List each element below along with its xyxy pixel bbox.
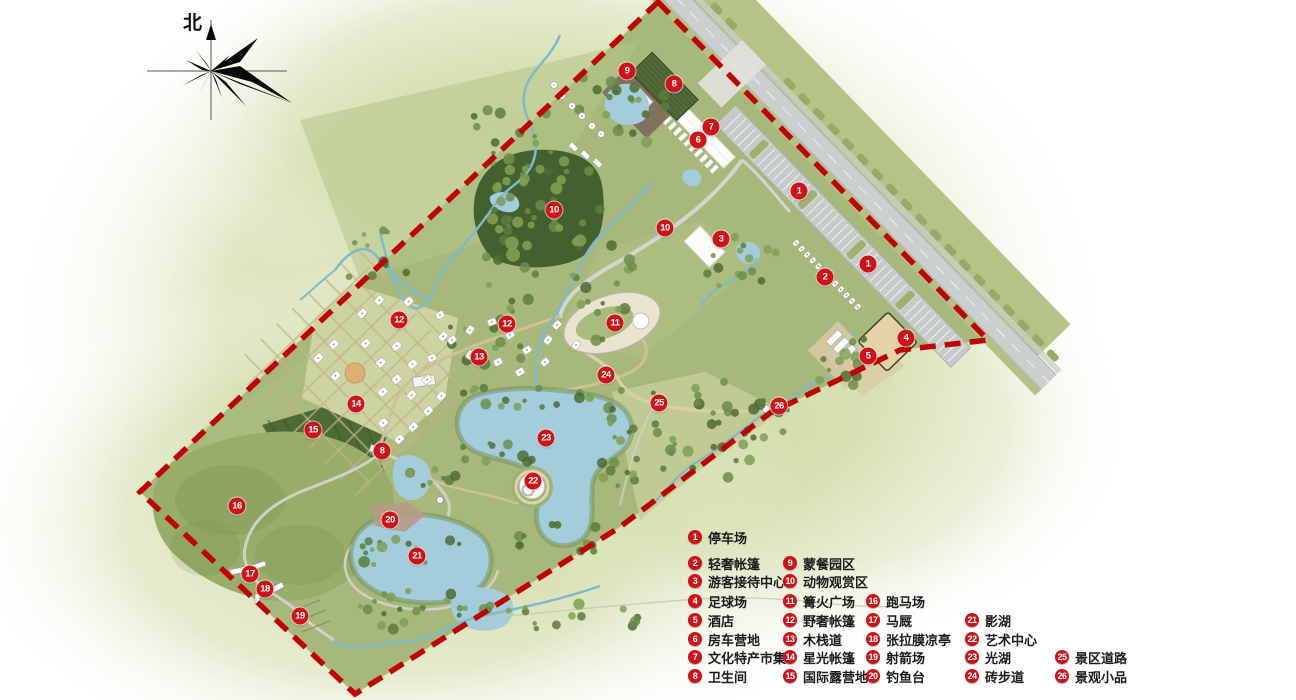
legend-item-7: 7文化特产市集 (688, 649, 786, 665)
map-overlay: 北 11234567889101011121213141516171819202… (0, 0, 1296, 700)
legend-item-26: 26景观小品 (1055, 668, 1127, 684)
legend-item-12: 12野奢帐篷 (783, 612, 855, 628)
legend-number-badge: 2 (688, 556, 702, 570)
north-label: 北 (183, 8, 202, 35)
map-marker-14: 14 (348, 396, 365, 413)
legend-item-6: 6房车营地 (688, 631, 760, 647)
legend-number-badge: 21 (965, 613, 979, 627)
map-marker-3: 3 (713, 231, 730, 248)
legend-item-19: 19射箭场 (866, 649, 925, 665)
legend-number-badge: 13 (783, 632, 797, 646)
legend-label: 砖步道 (985, 667, 1024, 686)
legend-label: 钓鱼台 (886, 667, 925, 686)
legend-label: 野奢帐篷 (803, 611, 855, 630)
legend-item-4: 4足球场 (688, 593, 747, 609)
legend-item-10: 10动物观赏区 (783, 573, 868, 589)
map-marker-9: 9 (619, 63, 636, 80)
legend-item-16: 16跑马场 (866, 593, 925, 609)
legend-item-3: 3游客接待中心 (688, 573, 786, 589)
legend-item-9: 9蒙餐园区 (783, 555, 855, 571)
legend-item-18: 18张拉膜凉亭 (866, 631, 951, 647)
legend-number-badge: 22 (965, 632, 979, 646)
map-marker-4: 4 (898, 330, 915, 347)
legend-item-24: 24砖步道 (965, 668, 1024, 684)
legend-number-badge: 12 (783, 613, 797, 627)
map-marker-15: 15 (305, 422, 322, 439)
legend-label: 文化特产市集 (708, 648, 786, 667)
legend-item-11: 11篝火广场 (783, 593, 855, 609)
legend-number-badge: 23 (965, 650, 979, 664)
legend-label: 影湖 (985, 611, 1011, 630)
map-marker-22: 22 (525, 473, 542, 490)
legend-number-badge: 11 (783, 594, 797, 608)
map-marker-7: 7 (703, 119, 720, 136)
map-marker-1: 1 (791, 183, 808, 200)
legend-number-badge: 4 (688, 594, 702, 608)
map-marker-12: 12 (391, 312, 408, 329)
legend-number-badge: 14 (783, 650, 797, 664)
map-marker-18: 18 (257, 581, 274, 598)
legend-number-badge: 19 (866, 650, 880, 664)
legend-item-14: 14星光帐篷 (783, 649, 855, 665)
legend-item-15: 15国际露营地 (783, 668, 868, 684)
map-marker-2: 2 (817, 269, 834, 286)
legend-item-23: 23光湖 (965, 649, 1011, 665)
map-marker-17: 17 (242, 566, 259, 583)
legend-label: 蒙餐园区 (803, 554, 855, 573)
legend-item-20: 20钓鱼台 (866, 668, 925, 684)
legend-number-badge: 10 (783, 574, 797, 588)
legend-label: 停车场 (708, 528, 747, 547)
map-marker-1: 1 (860, 256, 877, 273)
legend-label: 跑马场 (886, 592, 925, 611)
legend-label: 马厩 (886, 611, 912, 630)
legend-number-badge: 15 (783, 669, 797, 683)
legend-item-22: 22艺术中心 (965, 631, 1037, 647)
legend-item-5: 5酒店 (688, 612, 734, 628)
legend-label: 星光帐篷 (803, 648, 855, 667)
map-marker-13: 13 (471, 349, 488, 366)
map-marker-21: 21 (409, 548, 426, 565)
legend-label: 足球场 (708, 592, 747, 611)
legend-number-badge: 24 (965, 669, 979, 683)
legend-label: 轻奢帐篷 (708, 554, 760, 573)
legend-item-17: 17马厩 (866, 612, 912, 628)
map-marker-23: 23 (538, 430, 555, 447)
map-marker-24: 24 (598, 367, 615, 384)
legend-item-8: 8卫生间 (688, 668, 747, 684)
legend-number-badge: 20 (866, 669, 880, 683)
legend-label: 房车营地 (708, 630, 760, 649)
map-marker-6: 6 (690, 132, 707, 149)
map-marker-12: 12 (499, 316, 516, 333)
legend-label: 张拉膜凉亭 (886, 630, 951, 649)
map-marker-8: 8 (666, 76, 683, 93)
legend-item-2: 2轻奢帐篷 (688, 555, 760, 571)
legend-number-badge: 8 (688, 669, 702, 683)
legend-item-1: 1停车场 (688, 529, 747, 545)
legend-item-25: 25景区道路 (1055, 649, 1127, 665)
legend-label: 艺术中心 (985, 630, 1037, 649)
legend-label: 光湖 (985, 648, 1011, 667)
legend-label: 游客接待中心 (708, 572, 786, 591)
legend-number-badge: 26 (1055, 669, 1069, 683)
map-marker-19: 19 (292, 608, 309, 625)
legend-number-badge: 18 (866, 632, 880, 646)
site-plan-canvas: 北 11234567889101011121213141516171819202… (0, 0, 1296, 700)
map-marker-10: 10 (546, 202, 563, 219)
map-marker-10: 10 (657, 220, 674, 237)
legend-number-badge: 16 (866, 594, 880, 608)
legend-number-badge: 3 (688, 574, 702, 588)
legend-label: 卫生间 (708, 667, 747, 686)
legend-label: 射箭场 (886, 648, 925, 667)
legend-label: 国际露营地 (803, 667, 868, 686)
map-marker-16: 16 (229, 498, 246, 515)
map-marker-20: 20 (382, 512, 399, 529)
legend-number-badge: 1 (688, 530, 702, 544)
legend-label: 木栈道 (803, 630, 842, 649)
map-marker-11: 11 (607, 315, 624, 332)
legend-label: 动物观赏区 (803, 572, 868, 591)
legend-item-13: 13木栈道 (783, 631, 842, 647)
legend-number-badge: 6 (688, 632, 702, 646)
legend-number-badge: 9 (783, 556, 797, 570)
map-marker-5: 5 (860, 348, 877, 365)
map-marker-25: 25 (651, 395, 668, 412)
legend-number-badge: 25 (1055, 650, 1069, 664)
legend-number-badge: 17 (866, 613, 880, 627)
legend-label: 景观小品 (1075, 667, 1127, 686)
map-marker-8: 8 (374, 443, 391, 460)
map-marker-26: 26 (771, 398, 788, 415)
legend-label: 酒店 (708, 611, 734, 630)
legend-number-badge: 7 (688, 650, 702, 664)
legend-item-21: 21影湖 (965, 612, 1011, 628)
legend-label: 篝火广场 (803, 592, 855, 611)
legend-number-badge: 5 (688, 613, 702, 627)
legend-label: 景区道路 (1075, 648, 1127, 667)
